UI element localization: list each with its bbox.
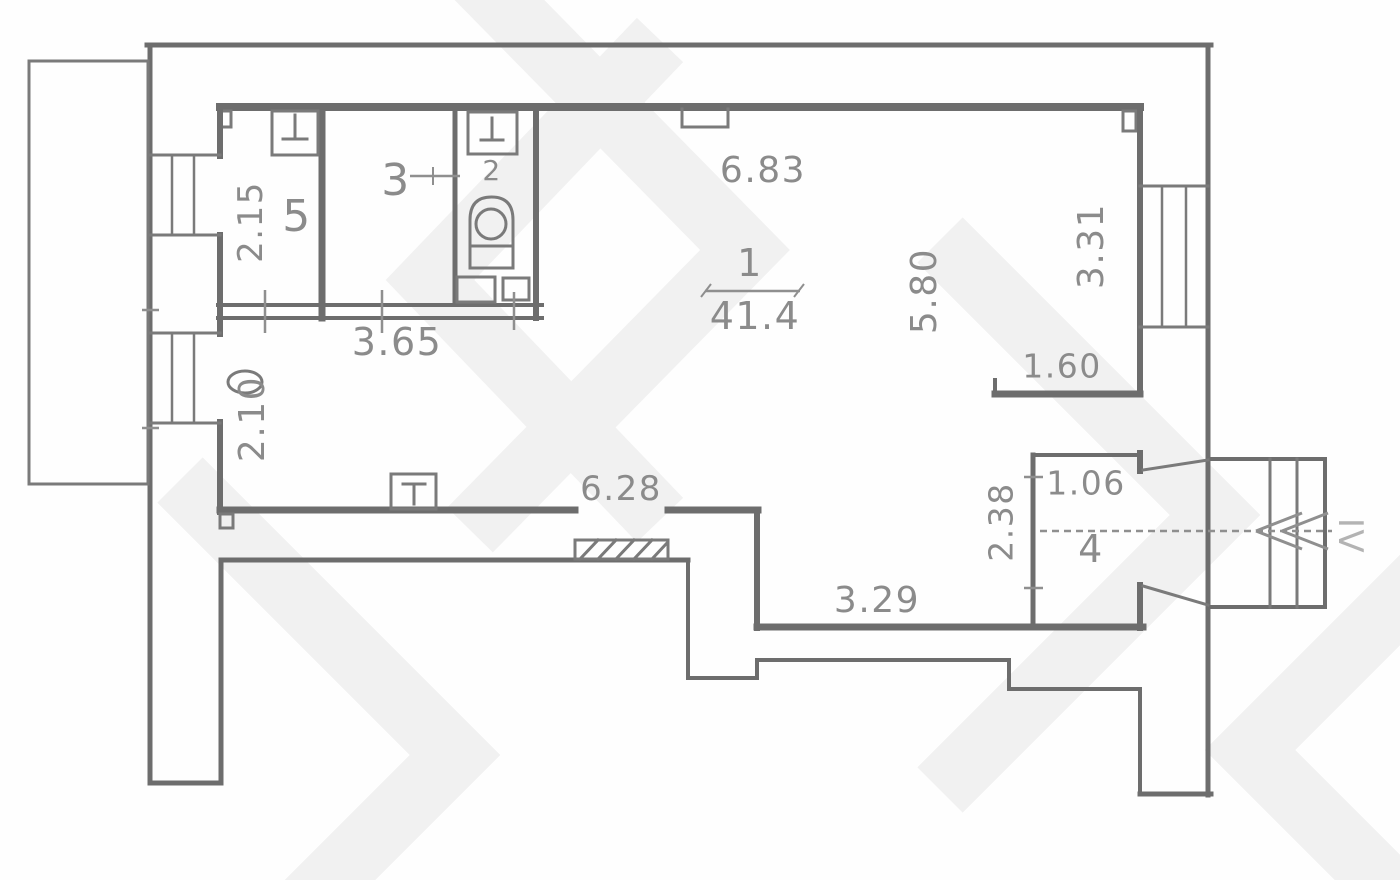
sink-room5-icon	[272, 111, 318, 155]
dim-vestibule-width: 1.06	[1046, 467, 1125, 500]
dim-left-upper: 2.15	[234, 181, 268, 263]
plan-drawing	[0, 0, 1400, 880]
dim-hall-height: 5.80	[907, 248, 943, 334]
watermark	[180, 0, 1400, 880]
dim-niche: 1.60	[1022, 350, 1101, 383]
dim-rooms-width: 3.65	[352, 323, 443, 361]
window-left-lower	[150, 333, 220, 423]
room-4-number: 4	[1078, 530, 1104, 568]
dim-top-width: 6.83	[720, 153, 806, 189]
top-wall-notch	[682, 109, 728, 127]
entrance-label: IV	[1333, 518, 1367, 554]
room-2-number: 2	[482, 157, 501, 185]
dim-opening: 6.28	[580, 472, 662, 506]
threshold-hatch	[575, 540, 668, 559]
room-3-number: 3	[381, 159, 411, 203]
room-5-number: 5	[282, 195, 312, 239]
window-right	[1140, 186, 1208, 327]
annex-outline	[29, 61, 148, 484]
dim-right-span: 3.31	[1074, 203, 1110, 289]
floor-plan-canvas: 2.15 5 3 2 6.83 3.31 1 41.4 5.80 3.65 2.…	[0, 0, 1400, 880]
sink-room2-icon	[468, 112, 517, 154]
dim-left-lower: 2.10	[235, 376, 271, 462]
window-left-upper	[150, 155, 220, 235]
dim-vestibule-height: 2.38	[985, 482, 1018, 561]
room-1-area: 41.4	[710, 297, 801, 335]
room-1-number: 1	[737, 244, 763, 282]
radiator-icon	[391, 474, 436, 509]
dim-bottom-span: 3.29	[834, 583, 920, 619]
